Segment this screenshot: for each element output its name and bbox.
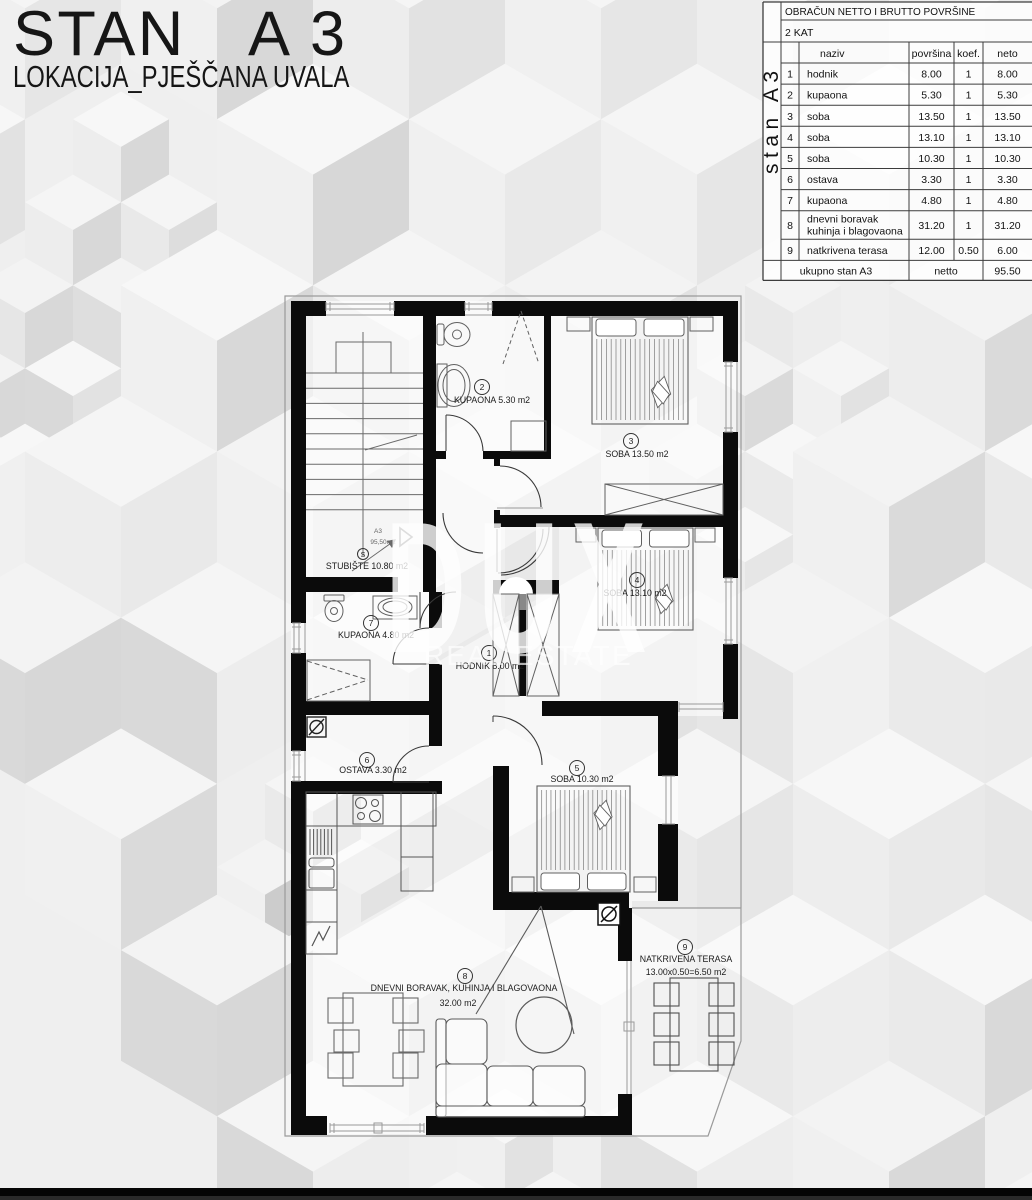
svg-text:dnevni boravak: dnevni boravak bbox=[807, 214, 879, 226]
svg-text:1: 1 bbox=[966, 111, 972, 123]
svg-text:2: 2 bbox=[787, 90, 793, 102]
svg-text:7: 7 bbox=[369, 618, 374, 628]
svg-text:5: 5 bbox=[787, 153, 793, 165]
svg-text:31.20: 31.20 bbox=[994, 220, 1020, 232]
svg-text:7: 7 bbox=[787, 195, 793, 207]
svg-text:kuhinja i blagovaona: kuhinja i blagovaona bbox=[807, 226, 903, 238]
svg-text:1: 1 bbox=[966, 220, 972, 232]
svg-text:9: 9 bbox=[683, 942, 688, 952]
svg-text:natkrivena terasa: natkrivena terasa bbox=[807, 245, 888, 257]
svg-text:1: 1 bbox=[966, 195, 972, 207]
svg-text:0.50: 0.50 bbox=[958, 245, 979, 257]
svg-text:1: 1 bbox=[966, 90, 972, 102]
svg-text:13.50: 13.50 bbox=[994, 111, 1020, 123]
svg-text:13.10: 13.10 bbox=[918, 132, 944, 144]
svg-text:12.00: 12.00 bbox=[918, 245, 944, 257]
svg-text:koef.: koef. bbox=[957, 48, 980, 60]
svg-text:4.80: 4.80 bbox=[997, 195, 1018, 207]
svg-text:hodnik: hodnik bbox=[807, 69, 839, 81]
svg-text:SOBA 10.30 m2: SOBA 10.30 m2 bbox=[550, 774, 613, 784]
svg-text:kupaona: kupaona bbox=[807, 195, 847, 207]
svg-text:95.50: 95.50 bbox=[994, 265, 1020, 277]
svg-text:10.30: 10.30 bbox=[918, 153, 944, 165]
svg-text:6: 6 bbox=[365, 755, 370, 765]
svg-text:KUPAONA 5.30 m2: KUPAONA 5.30 m2 bbox=[454, 395, 530, 405]
svg-text:površina: površina bbox=[912, 48, 952, 60]
svg-text:13.50: 13.50 bbox=[918, 111, 944, 123]
svg-text:2: 2 bbox=[480, 382, 485, 392]
svg-text:5.30: 5.30 bbox=[997, 90, 1018, 102]
svg-text:5.30: 5.30 bbox=[921, 90, 942, 102]
svg-text:10.30: 10.30 bbox=[994, 153, 1020, 165]
svg-text:OSTAVA 3.30 m2: OSTAVA 3.30 m2 bbox=[339, 765, 407, 775]
svg-text:netto: netto bbox=[934, 265, 958, 277]
svg-text:neto: neto bbox=[997, 48, 1018, 60]
svg-text:soba: soba bbox=[807, 153, 830, 165]
svg-text:13.00x0.50=6.50 m2: 13.00x0.50=6.50 m2 bbox=[646, 967, 727, 977]
svg-text:4.80: 4.80 bbox=[921, 195, 942, 207]
svg-text:32.00 m2: 32.00 m2 bbox=[440, 998, 477, 1008]
svg-text:REAL ESTATE: REAL ESTATE bbox=[424, 640, 633, 671]
svg-text:1: 1 bbox=[787, 69, 793, 81]
svg-text:6: 6 bbox=[787, 174, 793, 186]
svg-text:4: 4 bbox=[787, 132, 793, 144]
svg-text:13.10: 13.10 bbox=[994, 132, 1020, 144]
svg-text:S: S bbox=[361, 552, 366, 559]
svg-text:3: 3 bbox=[629, 436, 634, 446]
svg-text:LOKACIJA_PJEŠČANA UVALA: LOKACIJA_PJEŠČANA UVALA bbox=[13, 59, 350, 94]
svg-text:ostava: ostava bbox=[807, 174, 838, 186]
svg-text:3: 3 bbox=[787, 111, 793, 123]
svg-text:DNEVNI BORAVAK, KUHINJA I BLAG: DNEVNI BORAVAK, KUHINJA I BLAGOVAONA bbox=[371, 983, 558, 993]
svg-text:1: 1 bbox=[966, 153, 972, 165]
svg-text:6.00: 6.00 bbox=[997, 245, 1018, 257]
svg-text:8: 8 bbox=[787, 220, 793, 232]
svg-text:8.00: 8.00 bbox=[921, 69, 942, 81]
svg-text:2 KAT: 2 KAT bbox=[785, 27, 814, 39]
svg-text:soba: soba bbox=[807, 111, 830, 123]
svg-text:8: 8 bbox=[463, 971, 468, 981]
svg-text:9: 9 bbox=[787, 245, 793, 257]
svg-text:A3: A3 bbox=[374, 528, 382, 535]
svg-text:1: 1 bbox=[966, 69, 972, 81]
svg-text:OBRAČUN NETTO I BRUTTO POVRŠIN: OBRAČUN NETTO I BRUTTO POVRŠINE bbox=[785, 5, 976, 18]
svg-text:3.30: 3.30 bbox=[997, 174, 1018, 186]
svg-text:NATKRIVENA TERASA: NATKRIVENA TERASA bbox=[640, 954, 733, 964]
svg-text:stan A3: stan A3 bbox=[760, 65, 783, 174]
svg-text:kupaona: kupaona bbox=[807, 90, 847, 102]
svg-text:soba: soba bbox=[807, 132, 830, 144]
svg-text:1: 1 bbox=[966, 132, 972, 144]
svg-text:3.30: 3.30 bbox=[921, 174, 942, 186]
svg-text:5: 5 bbox=[575, 763, 580, 773]
svg-text:8.00: 8.00 bbox=[997, 69, 1018, 81]
svg-text:ukupno stan A3: ukupno stan A3 bbox=[800, 265, 873, 277]
svg-text:naziv: naziv bbox=[820, 48, 845, 60]
svg-text:31.20: 31.20 bbox=[918, 220, 944, 232]
svg-text:SOBA 13.50 m2: SOBA 13.50 m2 bbox=[605, 449, 668, 459]
svg-text:1: 1 bbox=[966, 174, 972, 186]
